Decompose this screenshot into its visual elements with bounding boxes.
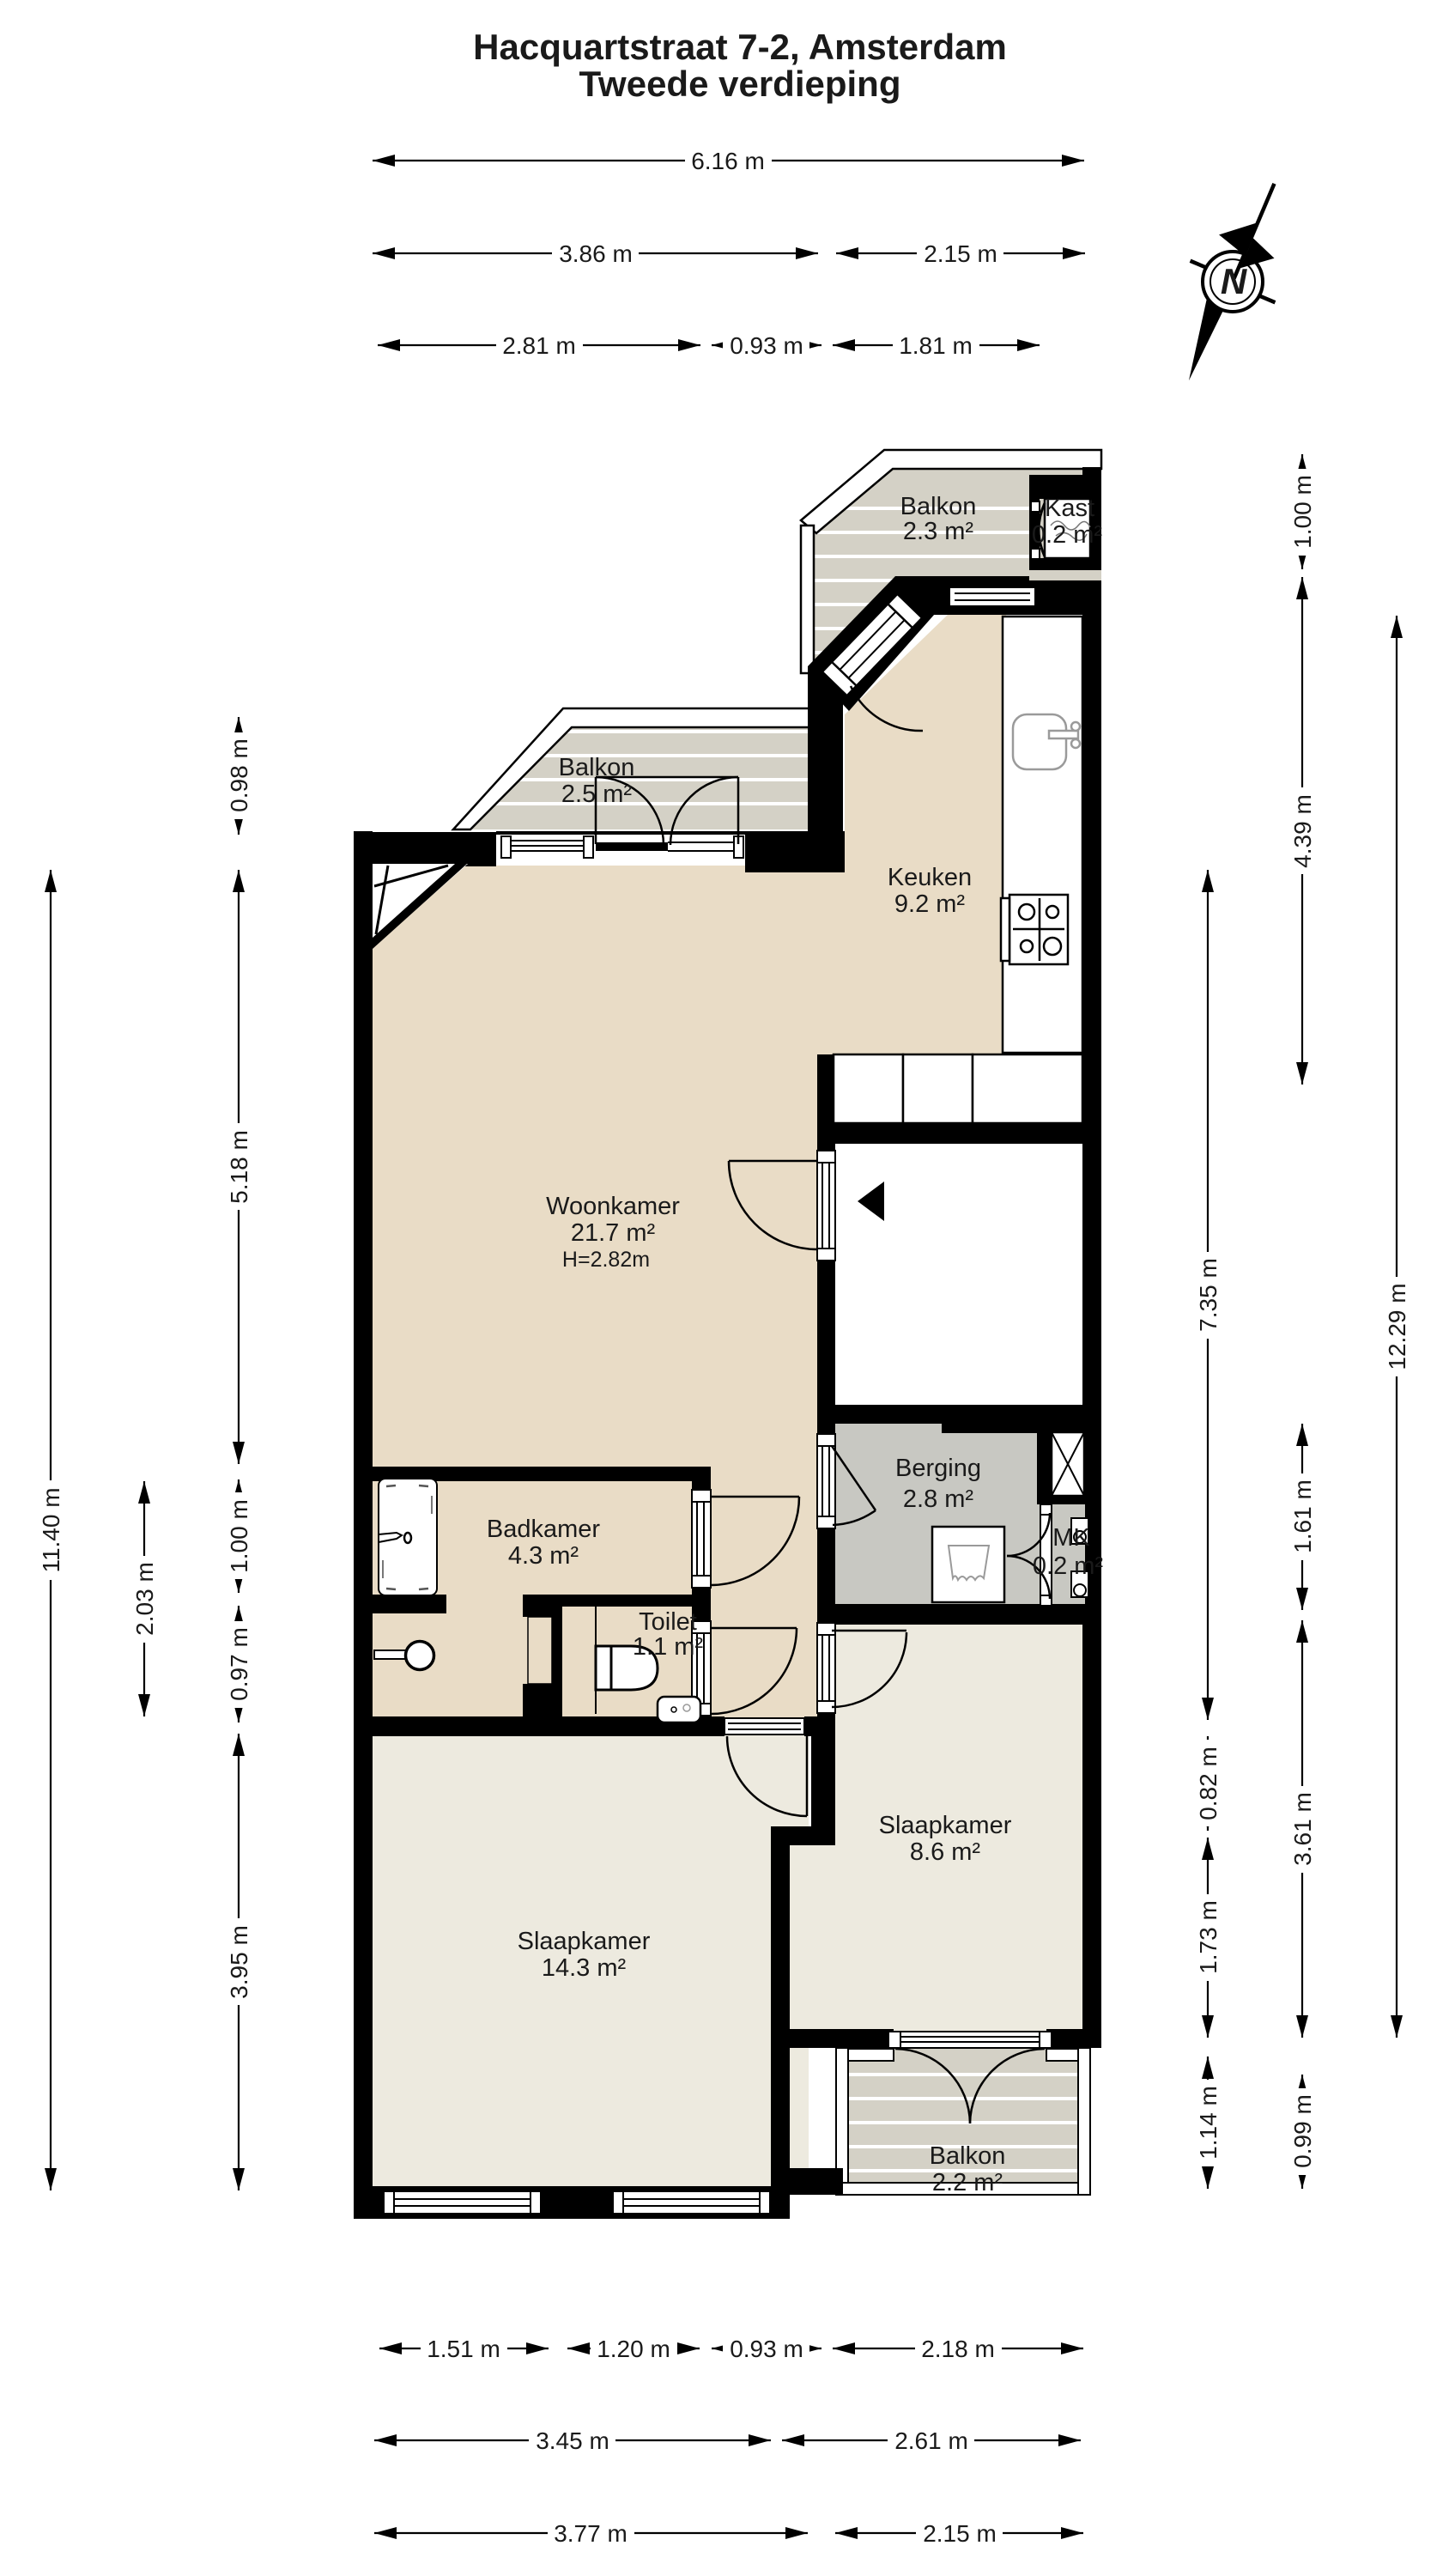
svg-text:2.2 m²: 2.2 m² xyxy=(932,2169,1003,2196)
svg-text:2.81 m: 2.81 m xyxy=(502,332,576,359)
svg-text:Slaapkamer: Slaapkamer xyxy=(879,1812,1012,1839)
svg-text:Toilet: Toilet xyxy=(639,1608,697,1636)
svg-text:2.15 m: 2.15 m xyxy=(924,240,997,267)
svg-text:0.99 m: 0.99 m xyxy=(1289,2094,1316,2168)
svg-text:1.73 m: 1.73 m xyxy=(1195,1900,1222,1974)
svg-text:H=2.82m: H=2.82m xyxy=(562,1248,650,1272)
svg-text:2.15 m: 2.15 m xyxy=(923,2520,997,2547)
svg-text:1.81 m: 1.81 m xyxy=(899,332,973,359)
svg-text:4.39 m: 4.39 m xyxy=(1289,794,1316,868)
svg-text:1.14 m: 1.14 m xyxy=(1195,2086,1222,2160)
svg-text:Hacquartstraat 7-2, Amsterdam: Hacquartstraat 7-2, Amsterdam xyxy=(473,27,1007,67)
svg-text:3.61 m: 3.61 m xyxy=(1289,1792,1316,1866)
svg-text:N: N xyxy=(1221,261,1248,301)
svg-text:1.61 m: 1.61 m xyxy=(1289,1479,1316,1553)
svg-text:Balkon: Balkon xyxy=(559,754,635,781)
svg-text:Badkamer: Badkamer xyxy=(487,1516,601,1543)
svg-text:0.98 m: 0.98 m xyxy=(226,738,252,812)
svg-text:14.3 m²: 14.3 m² xyxy=(542,1954,627,1982)
svg-text:0.93 m: 0.93 m xyxy=(730,332,803,359)
svg-text:1.00 m: 1.00 m xyxy=(226,1499,252,1573)
svg-text:12.29 m: 12.29 m xyxy=(1384,1283,1410,1370)
svg-text:5.18 m: 5.18 m xyxy=(226,1130,252,1204)
svg-text:6.16 m: 6.16 m xyxy=(691,148,765,174)
svg-text:1.00 m: 1.00 m xyxy=(1289,475,1316,549)
svg-text:0.97 m: 0.97 m xyxy=(226,1627,252,1701)
svg-text:1.51 m: 1.51 m xyxy=(427,2336,500,2362)
svg-text:0.2 m²: 0.2 m² xyxy=(1032,521,1103,549)
svg-text:3.86 m: 3.86 m xyxy=(559,240,633,267)
svg-text:Berging: Berging xyxy=(895,1455,981,1482)
svg-text:Woonkamer: Woonkamer xyxy=(546,1193,680,1220)
svg-text:1.1 m²: 1.1 m² xyxy=(633,1633,704,1661)
svg-text:2.8 m²: 2.8 m² xyxy=(903,1485,974,1513)
svg-text:2.03 m: 2.03 m xyxy=(131,1562,158,1636)
svg-text:1.20 m: 1.20 m xyxy=(597,2336,670,2362)
svg-text:Balkon: Balkon xyxy=(930,2142,1006,2170)
svg-text:2.3 m²: 2.3 m² xyxy=(903,518,974,545)
svg-text:0.82 m: 0.82 m xyxy=(1195,1747,1222,1820)
svg-text:2.61 m: 2.61 m xyxy=(894,2427,968,2454)
svg-text:3.95 m: 3.95 m xyxy=(226,1925,252,1999)
svg-text:21.7 m²: 21.7 m² xyxy=(571,1219,656,1247)
svg-text:8.6 m²: 8.6 m² xyxy=(910,1838,981,1866)
svg-text:0.2 m²: 0.2 m² xyxy=(1033,1552,1104,1580)
svg-text:7.35 m: 7.35 m xyxy=(1195,1258,1222,1332)
svg-text:0.93 m: 0.93 m xyxy=(730,2336,803,2362)
svg-text:11.40 m: 11.40 m xyxy=(38,1487,64,1572)
svg-text:2.18 m: 2.18 m xyxy=(921,2336,995,2362)
svg-text:Kast: Kast xyxy=(1045,495,1094,522)
svg-text:Balkon: Balkon xyxy=(900,493,977,520)
svg-text:3.77 m: 3.77 m xyxy=(554,2520,627,2547)
svg-text:3.45 m: 3.45 m xyxy=(536,2427,609,2454)
svg-text:Tweede verdieping: Tweede verdieping xyxy=(579,64,901,104)
svg-text:MK: MK xyxy=(1052,1524,1090,1552)
svg-text:9.2 m²: 9.2 m² xyxy=(894,890,966,918)
svg-text:2.5 m²: 2.5 m² xyxy=(561,781,633,808)
svg-text:Keuken: Keuken xyxy=(888,864,972,891)
svg-text:Slaapkamer: Slaapkamer xyxy=(518,1928,651,1955)
svg-text:4.3 m²: 4.3 m² xyxy=(508,1542,579,1570)
